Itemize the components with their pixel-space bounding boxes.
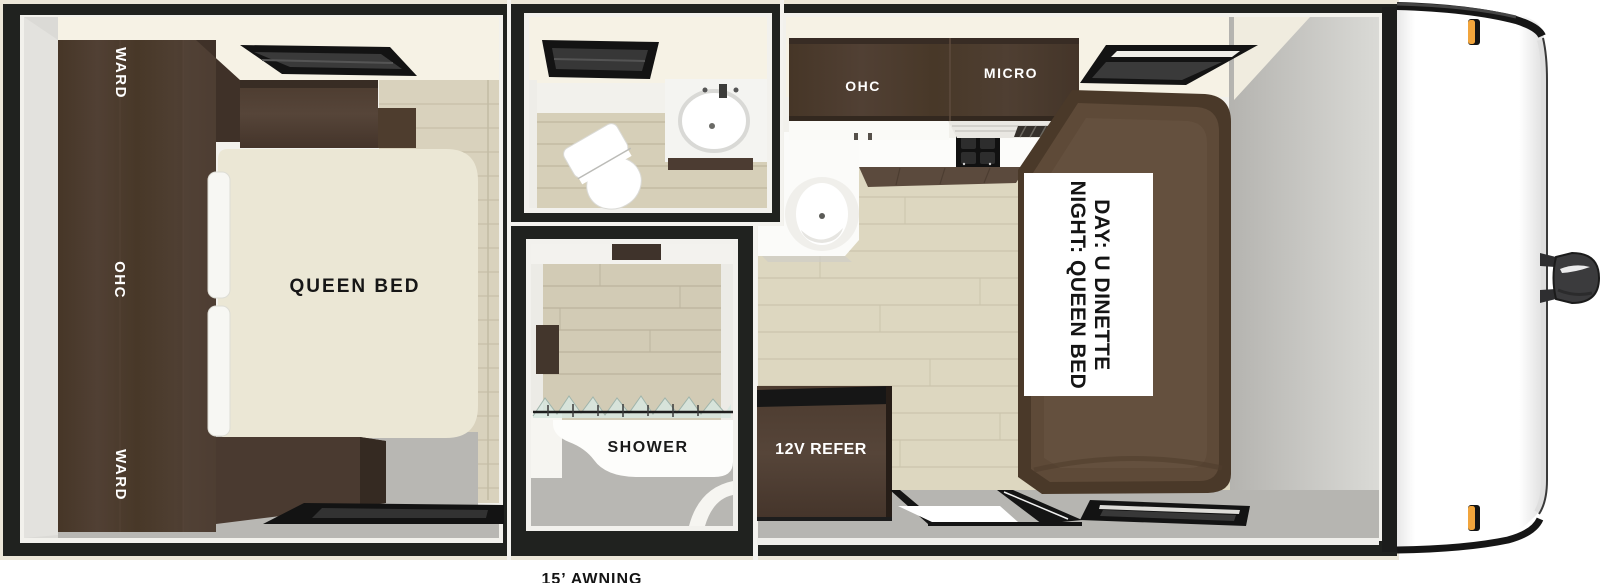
svg-text:SHOWER: SHOWER: [608, 439, 689, 456]
svg-text:OHC: OHC: [111, 261, 128, 299]
svg-text:QUEEN BED: QUEEN BED: [290, 276, 421, 297]
svg-text:WARD: WARD: [112, 47, 129, 99]
svg-text:NIGHT: QUEEN BED: NIGHT: QUEEN BED: [1066, 181, 1089, 390]
svg-text:15’ AWNING: 15’ AWNING: [542, 571, 643, 583]
svg-text:WARD: WARD: [112, 449, 129, 501]
svg-text:12V REFER: 12V REFER: [775, 441, 867, 458]
svg-text:MICRO: MICRO: [984, 65, 1038, 81]
svg-text:DAY: U DINETTE: DAY: U DINETTE: [1090, 199, 1113, 371]
svg-text:OHC: OHC: [845, 78, 881, 94]
